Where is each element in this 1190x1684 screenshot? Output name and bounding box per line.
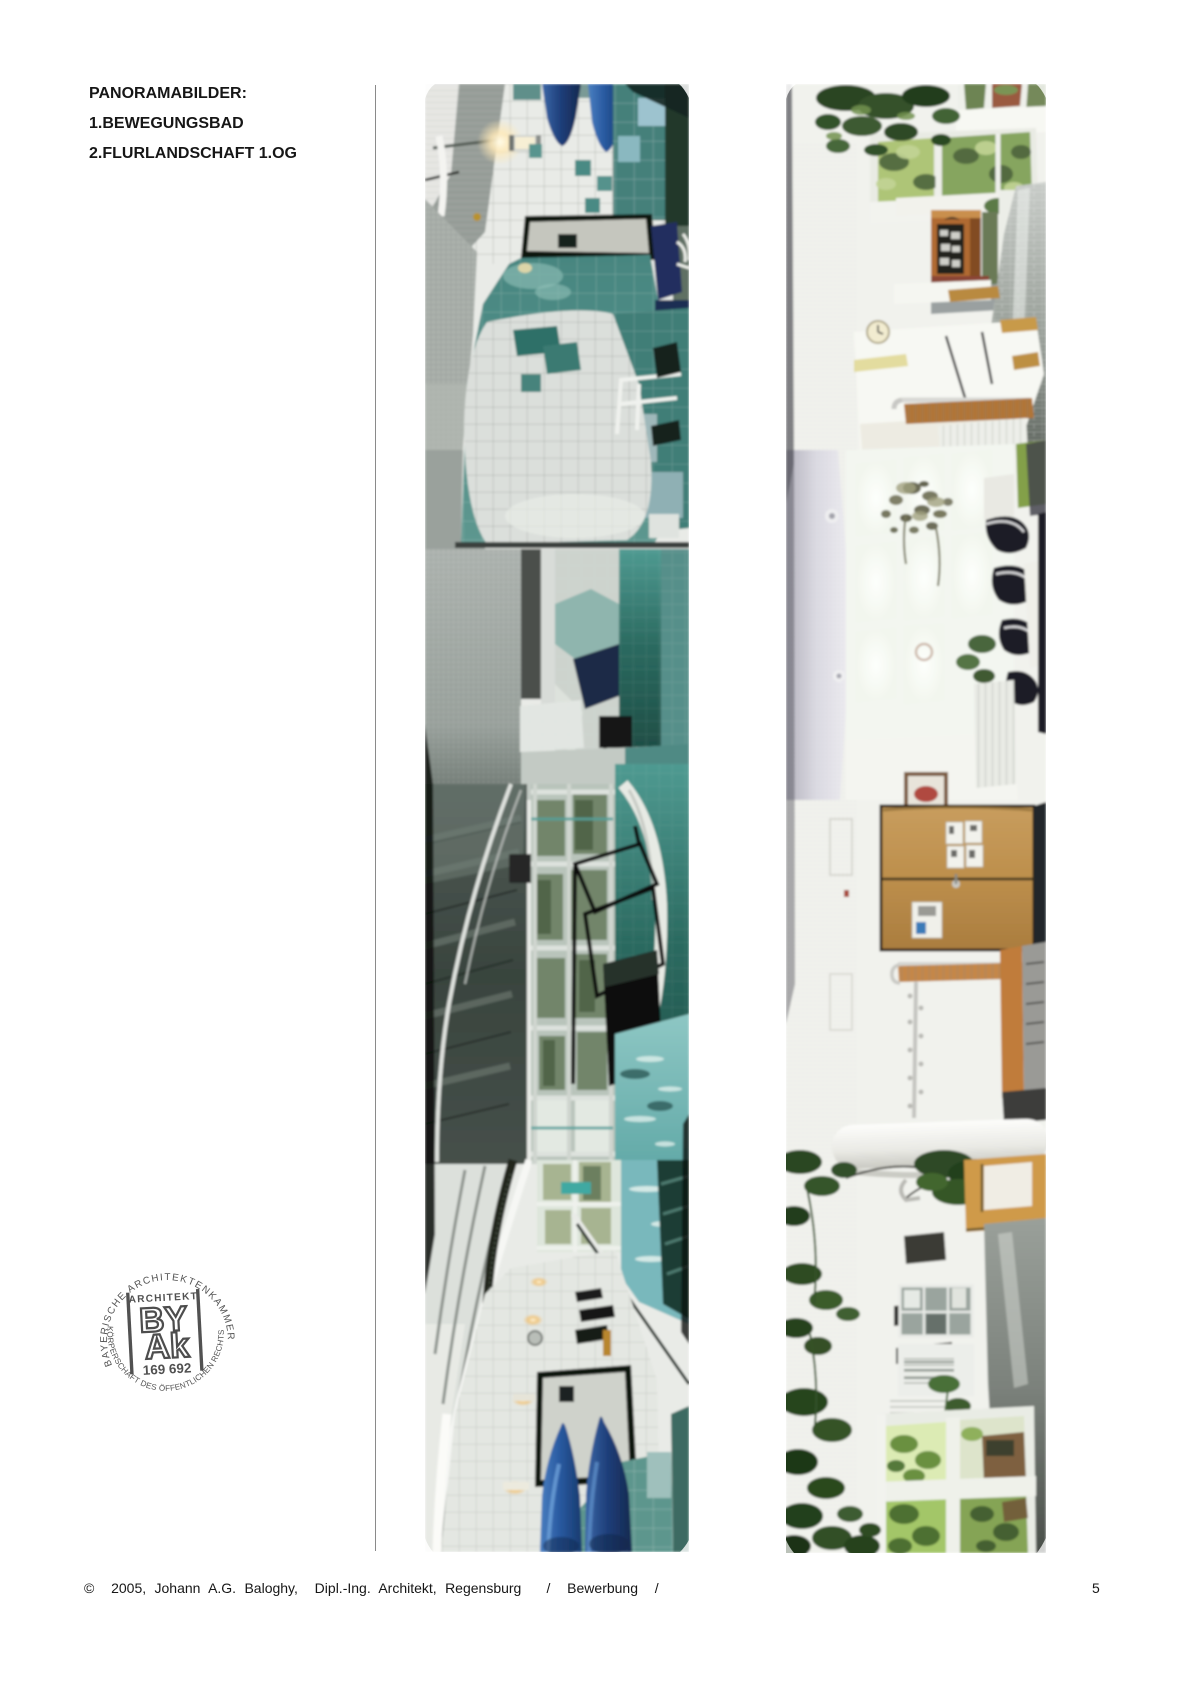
svg-text:169 692: 169 692 (142, 1360, 191, 1378)
